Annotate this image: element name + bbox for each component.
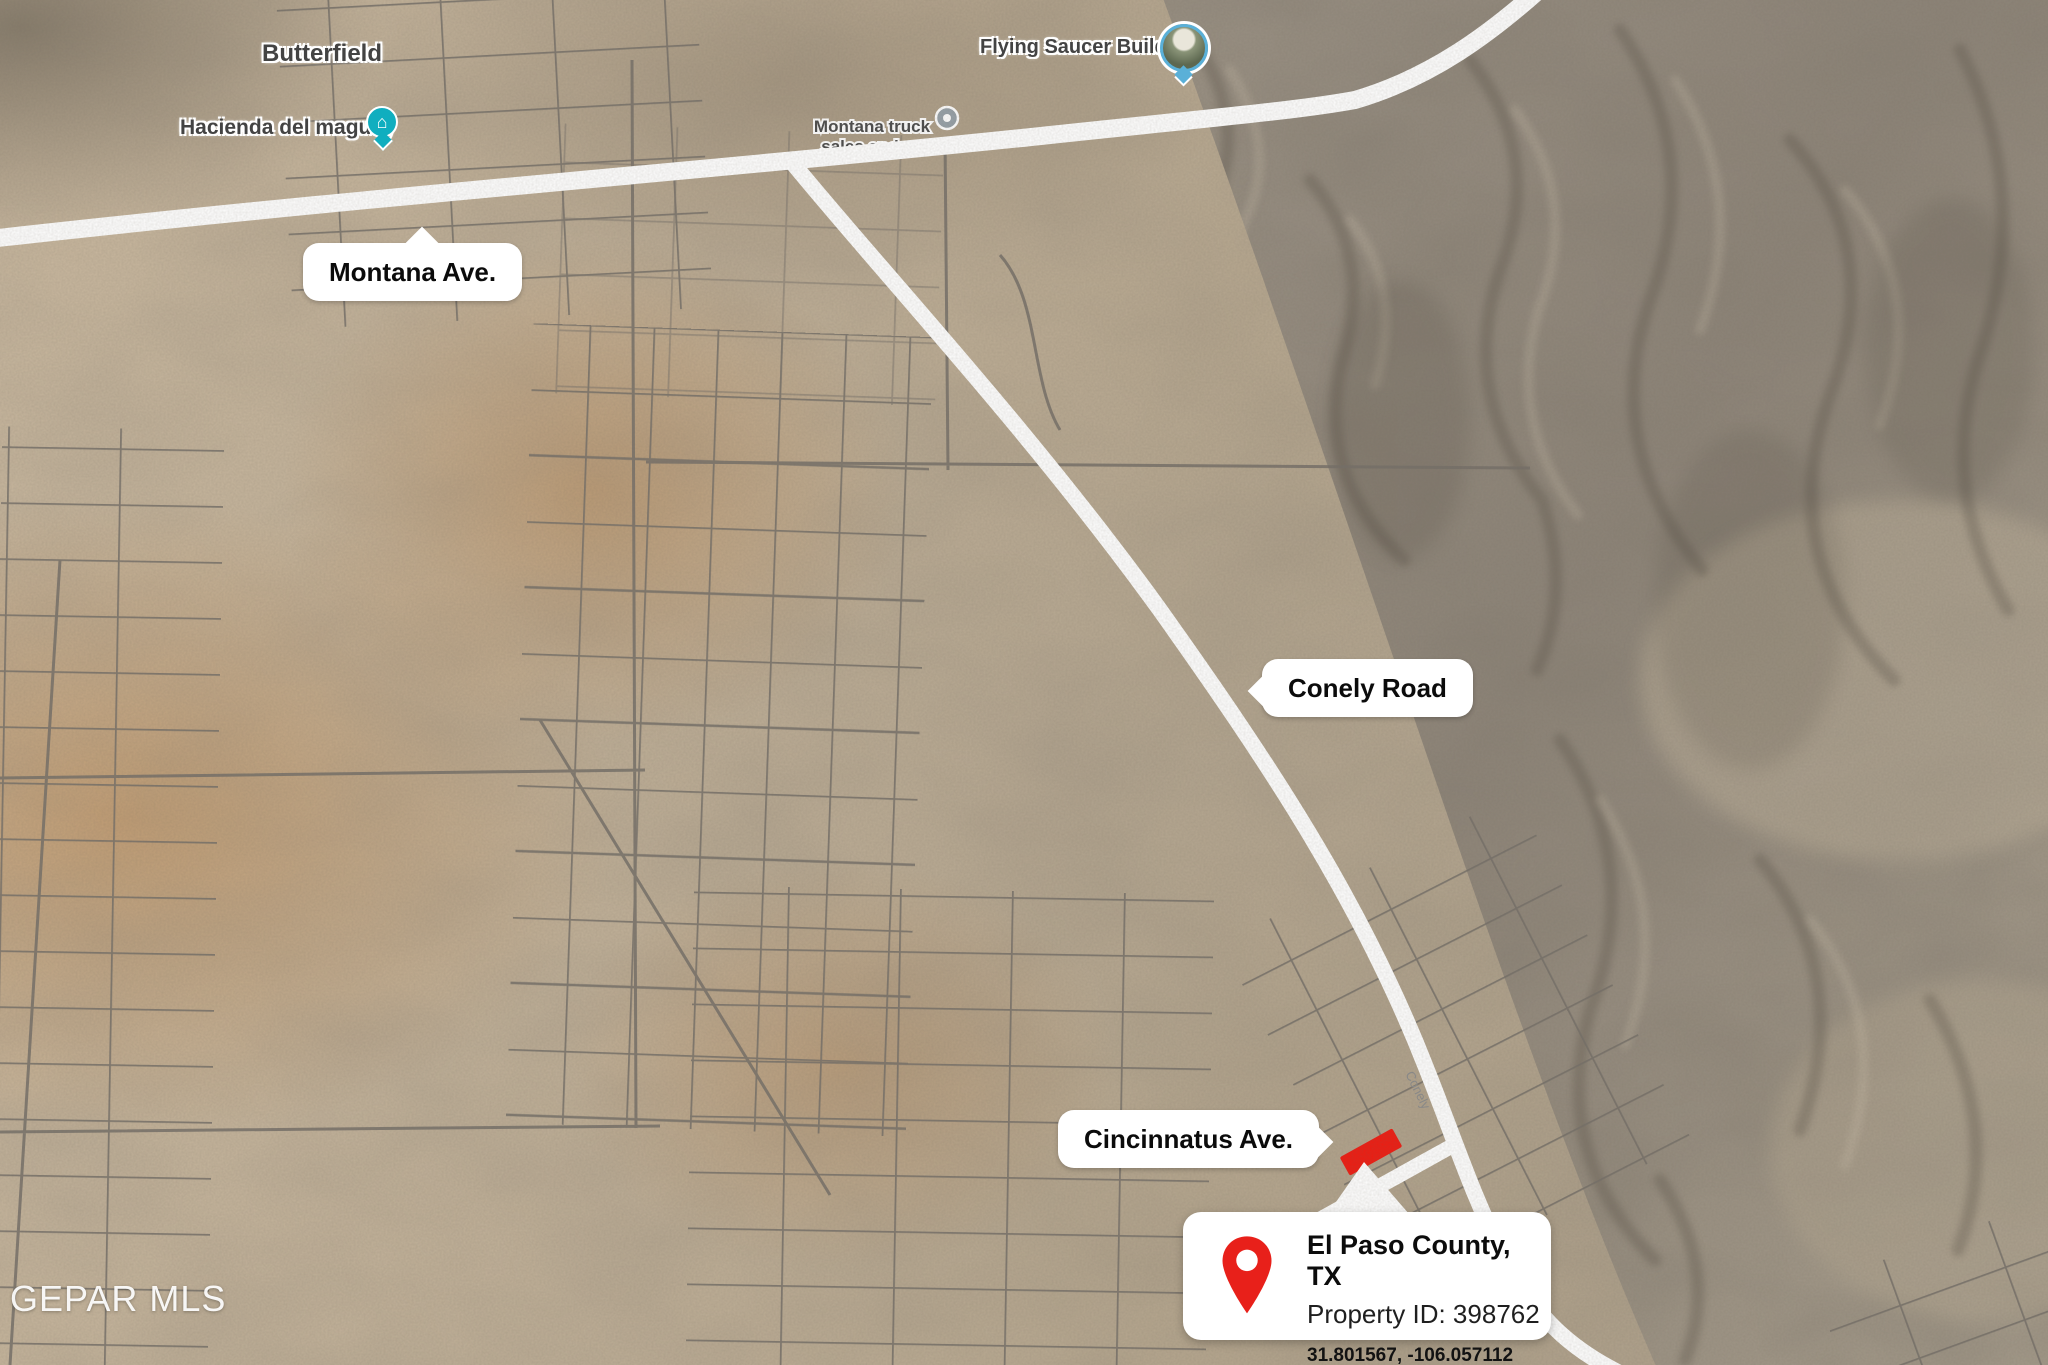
satellite-basemap: Montana truck sales and Conely [0,0,2048,1365]
callout-conely-road: Conely Road [1262,659,1473,717]
info-card-property-id: Property ID: 398762 [1307,1299,1551,1330]
callout-montana-label: Montana Ave. [329,257,496,287]
callout-cincinnatus-ave: Cincinnatus Ave. [1058,1110,1319,1168]
callout-conely-label: Conely Road [1288,673,1447,703]
photo-pin-image [1160,24,1208,72]
info-card-title: El Paso County, TX [1307,1230,1551,1292]
map-stage[interactable]: Montana truck sales and Conely Butterfie… [0,0,2048,1365]
callout-cincinnatus-label: Cincinnatus Ave. [1084,1124,1293,1154]
locality-label-butterfield[interactable]: Butterfield [262,40,382,68]
poi-label-hacienda[interactable]: Hacienda del maguey [180,116,395,140]
callout-montana-ave: Montana Ave. [303,243,522,301]
grain-texture [0,0,2048,1365]
property-info-card: El Paso County, TX Property ID: 398762 3… [1183,1212,1551,1340]
info-card-coordinates: 31.801567, -106.057112 [1307,1345,1551,1365]
flying-saucer-photo-pin[interactable] [1160,24,1212,90]
mls-watermark: GEPAR MLS [10,1278,226,1320]
red-location-pin-icon [1219,1234,1275,1318]
hacienda-place-pin[interactable]: ⌂ [366,106,400,152]
